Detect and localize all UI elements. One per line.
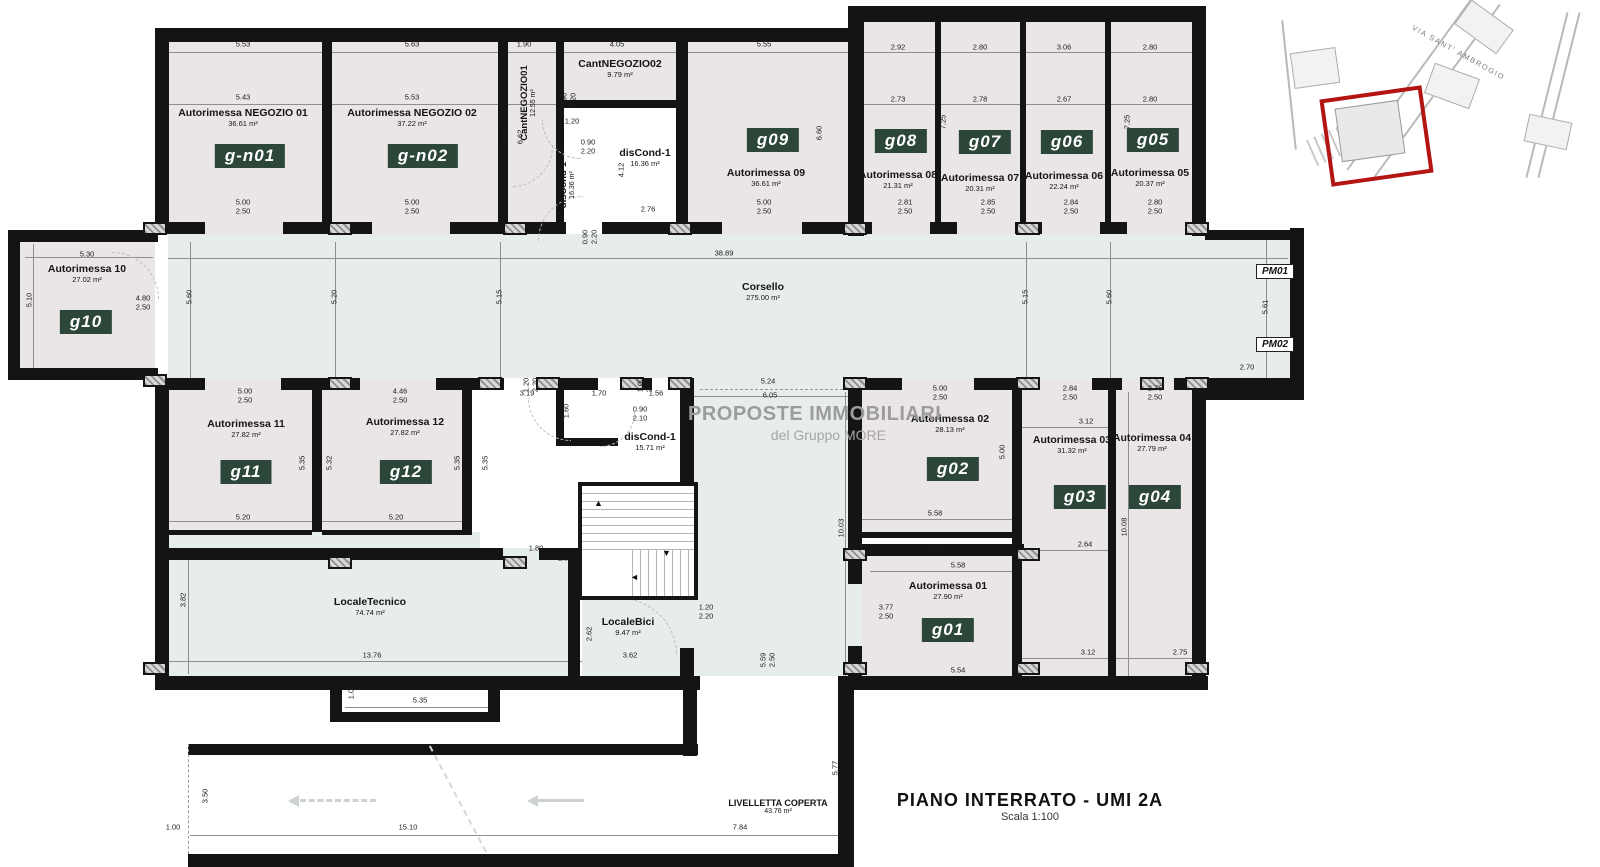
drawing-title: PIANO INTERRATO - UMI 2A [897, 790, 1163, 811]
dimension-label: 1.80 [529, 545, 544, 554]
column-pillar [1185, 377, 1209, 390]
inset-building [1290, 47, 1341, 89]
dim-line [862, 519, 1014, 520]
room-label-g03: Autorimessa 03 31.32 m² [1033, 434, 1111, 455]
dimension-label: 5.20 [389, 514, 404, 523]
room-area: 20.37 m² [1111, 179, 1189, 188]
wall [1105, 20, 1111, 226]
room-name: Autorimessa 08 [859, 169, 937, 181]
door-opening [1127, 222, 1185, 234]
room-area: 20.31 m² [941, 184, 1019, 193]
dimension-label: 3.62 [623, 652, 638, 661]
ramp-arrow-solid [538, 799, 584, 802]
wall [1290, 228, 1304, 400]
dimension-label: 5.35 [454, 456, 463, 471]
dimension-label: 2.62 [586, 627, 595, 642]
room-area: 74.74 m² [334, 608, 406, 617]
room-name: Autorimessa 04 [1113, 432, 1191, 444]
room-label-g11: Autorimessa 11 27.82 m² [207, 418, 285, 439]
dimension-label: 5.10 [78, 234, 93, 243]
wall [155, 28, 169, 234]
dimension-label: 4.80 2.50 [136, 294, 151, 311]
dimension-label: 5.20 [331, 290, 340, 305]
dimension-label: 5.00 [1016, 611, 1025, 626]
dimension-label: 0.90 2.20 [581, 230, 598, 245]
column-pillar [328, 222, 352, 235]
dimension-label: 3.82 [180, 593, 189, 608]
wall [322, 530, 472, 535]
dimension-label: 5.10 [26, 293, 35, 308]
room-name: CantNEGOZIO02 [578, 58, 661, 70]
room-area: 37.22 m² [347, 119, 477, 128]
dimension-label: 1.20 [565, 118, 580, 127]
wall [330, 712, 500, 722]
dimension-label: 1.00 2.20 [636, 378, 653, 393]
dim-line [335, 242, 336, 378]
wall [676, 28, 688, 226]
wall [8, 230, 20, 380]
room-label-g12: Autorimessa 12 27.82 m² [366, 416, 444, 437]
column-pillar [1185, 662, 1209, 675]
room-name: Autorimessa 12 [366, 416, 444, 428]
room-area: 31.32 m² [1033, 446, 1111, 455]
room-label-g10: Autorimessa 10 27.02 m² [48, 263, 126, 284]
stair-arrow-up-icon: ▲ [594, 498, 603, 508]
wall [462, 390, 472, 532]
wall [322, 42, 332, 226]
inset-building [1424, 63, 1480, 109]
dimension-label: 10.08 [1121, 518, 1130, 537]
room-name: Autorimessa 06 [1025, 170, 1103, 182]
garage-tag-g05: g05 [1127, 128, 1179, 152]
dimension-label: 7.84 [733, 824, 748, 833]
column-pillar [328, 556, 352, 569]
stair-arrow-left-icon: ◄ [630, 572, 639, 582]
dimension-label: 5.60 [186, 290, 195, 305]
ramp-arrow-dashed [300, 799, 376, 802]
dimension-label: 5.35 [413, 697, 428, 706]
dimension-label: 6.60 [816, 126, 825, 141]
wall [168, 530, 312, 535]
dimension-label: 5.00 2.50 [236, 198, 251, 215]
wall [1192, 6, 1206, 236]
room-area: 9.47 m² [602, 628, 655, 637]
dimension-label: 2.92 [891, 44, 906, 53]
dimension-label: 5.53 [236, 41, 251, 50]
marker-pm01: PM01 [1256, 264, 1294, 279]
door-opening [680, 600, 694, 648]
dimension-label: 1.20 2.20 [699, 603, 714, 620]
dimension-label: 5.77 [832, 761, 841, 776]
room-name: LocaleBici [602, 616, 655, 628]
dim-line [1026, 242, 1027, 378]
dimension-label: 1.90 [517, 41, 532, 50]
room-name: LocaleTecnico [334, 596, 406, 608]
door-opening [372, 222, 450, 234]
garage-tag-g03: g03 [1054, 485, 1106, 509]
wall [155, 28, 855, 42]
column-pillar [143, 374, 167, 387]
room-name: disCond-1 [624, 431, 675, 443]
room-fill-g03 [1020, 390, 1108, 676]
dimension-label: 1.20 2.20 [522, 378, 539, 393]
room-label-discond-top-v: disCond-1 16.36 m² [558, 162, 576, 208]
column-pillar [503, 222, 527, 235]
dimension-label: 5.30 [80, 251, 95, 260]
garage-tag-g02: g02 [927, 457, 979, 481]
dim-line [168, 661, 582, 662]
watermark-line2: del Gruppo MORE [688, 427, 886, 443]
dimension-label: 2.80 2.50 [1148, 198, 1163, 215]
wall [1012, 390, 1022, 676]
dimension-label: 5.59 2.50 [759, 653, 776, 668]
room-label-corsello: Corsello 275.00 m² [742, 281, 784, 302]
column-pillar [843, 662, 867, 675]
dimension-label: 2.67 [1057, 96, 1072, 105]
ramp-dashed-edge [188, 744, 189, 854]
room-label-g08: Autorimessa 08 21.31 m² [859, 169, 937, 190]
dim-line [345, 707, 490, 708]
dimension-label: 6.60 [502, 126, 511, 141]
dimension-label: 2.84 2.50 [1063, 384, 1078, 401]
room-label-tecnico: LocaleTecnico 74.74 m² [334, 596, 406, 617]
column-pillar [843, 222, 867, 235]
room-name: disCond-1 [619, 147, 670, 159]
wall [1205, 230, 1304, 240]
dimension-label: 2.80 [1143, 44, 1158, 53]
door-opening [957, 222, 1015, 234]
dimension-label: 5.00 2.50 [757, 198, 772, 215]
dimension-label: 5.53 [405, 94, 420, 103]
room-label-g01: Autorimessa 01 27.90 m² [909, 580, 987, 601]
inset-tram-line [1525, 12, 1568, 177]
inset-tram-line [1537, 12, 1580, 177]
stair-arrow-down-icon: ▼ [662, 548, 671, 558]
room-name: CantNEGOZIO01 [519, 65, 530, 141]
wall [155, 676, 700, 690]
dimension-label: 5.00 2.50 [933, 384, 948, 401]
column-pillar [1016, 222, 1040, 235]
stair-treads-upper [582, 486, 694, 550]
ramp-diagonal-joint [429, 746, 487, 853]
door-opening [1042, 222, 1100, 234]
floor-plan: ▲ ▼ ◄ 5.53 5.43 5.63 5.53 1.90 4.05 5.55… [0, 0, 1600, 867]
room-area: 9.79 m² [578, 70, 661, 79]
room-label-g04: Autorimessa 04 27.79 m² [1113, 432, 1191, 453]
wall [188, 854, 854, 867]
room-area: 15.71 m² [624, 443, 675, 452]
dimension-label: 3.12 [1079, 418, 1094, 427]
dim-line [1110, 242, 1111, 378]
wall [564, 100, 676, 108]
room-area: 27.90 m² [909, 592, 987, 601]
door-opening [205, 222, 283, 234]
staircase: ▲ ▼ ◄ [578, 482, 698, 600]
room-label-discond-mid: disCond-1 15.71 m² [624, 431, 675, 452]
dimension-label: 1.00 [348, 685, 357, 700]
room-name: Autorimessa 11 [207, 418, 285, 430]
dimension-label: 1.80 [558, 555, 573, 564]
dimension-label: 5.58 [928, 545, 943, 554]
garage-tag-g04: g04 [1129, 485, 1181, 509]
column-pillar [143, 662, 167, 675]
room-name: Autorimessa 07 [941, 172, 1019, 184]
garage-tag-g01: g01 [922, 618, 974, 642]
garage-tag-g09: g09 [747, 128, 799, 152]
room-area: 43.76 m² [728, 808, 827, 815]
wall [848, 6, 1206, 22]
dimension-label: 6.05 [763, 392, 778, 401]
dimension-label: 5.20 [236, 514, 251, 523]
dimension-label: 5.61 [1262, 300, 1271, 315]
ramp-arrow-head-icon [527, 795, 538, 807]
dim-line [500, 242, 501, 378]
dim-line [1016, 658, 1194, 659]
garage-tag-g06: g06 [1041, 130, 1093, 154]
room-name: Autorimessa 09 [727, 167, 805, 179]
wall [155, 378, 169, 690]
room-label-g07: Autorimessa 07 20.31 m² [941, 172, 1019, 193]
column-pillar [143, 222, 167, 235]
garage-tag-g11: g11 [220, 460, 271, 484]
room-label-cant02: CantNEGOZIO02 9.79 m² [578, 58, 661, 79]
dimension-label: 5.58 [951, 562, 966, 571]
dimension-label: 2.76 [641, 206, 656, 215]
room-name: LIVELLETTA COPERTA [728, 798, 827, 808]
dimension-label: 15.10 [399, 824, 418, 833]
dimension-label: 5.58 [928, 510, 943, 519]
dimension-label: 2.75 [1173, 649, 1188, 658]
room-name: disCond-1 [558, 162, 569, 208]
wall [862, 532, 1012, 538]
room-area: 275.00 m² [742, 293, 784, 302]
wall [8, 368, 158, 380]
garage-tag-gn01: g-n01 [215, 144, 285, 168]
door-opening [722, 222, 802, 234]
dimension-label: 4.05 [610, 41, 625, 50]
column-pillar [668, 222, 692, 235]
column-pillar [478, 377, 502, 390]
column-pillar [503, 556, 527, 569]
room-area: 28.13 m² [911, 425, 989, 434]
dimension-label: 1.00 [166, 824, 181, 833]
wall [1020, 20, 1026, 226]
dimension-label: 4.46 2.50 [393, 387, 408, 404]
garage-tag-g10: g10 [60, 310, 112, 334]
room-name: Autorimessa 01 [909, 580, 987, 592]
column-pillar [328, 377, 352, 390]
room-name: Corsello [742, 281, 784, 293]
dimension-label: 2.80 [973, 44, 988, 53]
dimension-label: 2.70 [1240, 364, 1255, 373]
inset-highlight-rect [1319, 85, 1433, 186]
column-pillar [843, 548, 867, 561]
column-pillar [1185, 222, 1209, 235]
room-name: Autorimessa 03 [1033, 434, 1111, 446]
dim-line [870, 571, 1014, 572]
marker-pm02: PM02 [1256, 337, 1294, 352]
column-pillar [668, 377, 692, 390]
column-pillar [1016, 377, 1040, 390]
dimension-label: 5.55 [757, 41, 772, 50]
room-area: 27.82 m² [366, 428, 444, 437]
dimension-label: 5.24 [761, 378, 776, 387]
garage-tag-g08: g08 [875, 129, 927, 153]
dimension-label: 13.76 [363, 652, 382, 661]
dimension-label: 3.50 [202, 789, 211, 804]
dimension-label: 5.35 [299, 456, 308, 471]
room-label-cant01: CantNEGOZIO01 12.55 m² [519, 65, 537, 141]
dim-line [190, 242, 191, 378]
room-name: Autorimessa NEGOZIO 02 [347, 107, 477, 119]
dimension-label: 5.00 2.50 [238, 387, 253, 404]
dimension-label: 5.32 [326, 456, 335, 471]
wall [188, 744, 698, 755]
dimension-label: 5.43 [236, 94, 251, 103]
dim-line [190, 835, 838, 836]
dimension-label: 2.75 2.50 [1148, 384, 1163, 401]
room-label-g05: Autorimessa 05 20.37 m² [1111, 167, 1189, 188]
wall [312, 390, 322, 532]
room-area: 16.36 m² [619, 159, 670, 168]
room-label-bici: LocaleBici 9.47 m² [602, 616, 655, 637]
column-pillar [1016, 662, 1040, 675]
garage-tag-g07: g07 [959, 130, 1011, 154]
dimension-label: 2.85 2.50 [981, 198, 996, 215]
door-opening [848, 584, 862, 646]
dimension-label: 7.25 [940, 115, 949, 130]
room-area: 16.36 m² [569, 162, 576, 208]
dimension-label: 2.73 [891, 96, 906, 105]
room-label-gn01: Autorimessa NEGOZIO 01 36.61 m² [178, 107, 308, 128]
inset-building [1524, 114, 1573, 151]
room-label-gn02: Autorimessa NEGOZIO 02 37.22 m² [347, 107, 477, 128]
room-label-g06: Autorimessa 06 22.24 m² [1025, 170, 1103, 191]
dimension-label: 5.54 [951, 667, 966, 676]
watermark-line1: PROPOSTE IMMOBILIARI [688, 403, 941, 426]
dimension-label: 3.06 [1057, 44, 1072, 53]
dimension-label: 0.90 2.20 [581, 138, 596, 155]
room-area: 12.55 m² [530, 65, 537, 141]
room-area: 22.24 m² [1025, 182, 1103, 191]
room-name: Autorimessa 10 [48, 263, 126, 275]
dimension-label: 5.63 [405, 41, 420, 50]
dimension-label: 2.64 [1078, 541, 1093, 550]
dim-line [188, 556, 189, 674]
wall [838, 690, 854, 860]
dimension-label: 1.70 [592, 390, 607, 399]
room-label-g09: Autorimessa 09 36.61 m² [727, 167, 805, 188]
dimension-label: 2.81 2.50 [898, 198, 913, 215]
dimension-label: 10.03 [838, 519, 847, 538]
wall [848, 6, 864, 236]
room-label-livelletta: LIVELLETTA COPERTA 43.76 m² [728, 798, 827, 815]
room-area: 27.79 m² [1113, 444, 1191, 453]
dimension-label: 5.15 [1022, 290, 1031, 305]
room-label-discond-top: disCond-1 16.36 m² [619, 147, 670, 168]
dimension-label: 3.77 2.50 [879, 603, 894, 620]
dimension-label: 3.12 [1081, 649, 1096, 658]
ramp-arrow-head-icon [288, 795, 299, 807]
room-name: Autorimessa NEGOZIO 01 [178, 107, 308, 119]
wall [838, 676, 1208, 690]
dim-line [1020, 427, 1110, 428]
dimension-label: 5.00 [999, 445, 1008, 460]
dimension-label: 5.15 [496, 290, 505, 305]
dimension-label: 2.78 [973, 96, 988, 105]
dimension-label: 2.80 [1143, 96, 1158, 105]
dimension-label: 38.89 [715, 250, 734, 259]
room-area: 27.02 m² [48, 275, 126, 284]
room-area: 21.31 m² [859, 181, 937, 190]
room-area: 36.61 m² [727, 179, 805, 188]
garage-tag-g12: g12 [380, 460, 432, 484]
room-name: Autorimessa 05 [1111, 167, 1189, 179]
column-pillar [1016, 548, 1040, 561]
dimension-label: 5.00 2.50 [405, 198, 420, 215]
dimension-label: 0.90 2.20 [560, 93, 577, 108]
drawing-scale: Scala 1:100 [1001, 811, 1059, 823]
dimension-label: 0.90 2.10 [633, 405, 648, 422]
wall [1192, 390, 1206, 688]
dimension-label: 2.84 2.50 [1064, 198, 1079, 215]
column-pillar [843, 377, 867, 390]
site-location-inset: VIA SANT' AMBROGIO [1278, 0, 1600, 178]
dimension-label: 1.60 [563, 404, 572, 419]
room-area: 27.82 m² [207, 430, 285, 439]
garage-tag-gn02: g-n02 [388, 144, 458, 168]
door-opening [872, 222, 930, 234]
dimension-label: 5.35 [482, 456, 491, 471]
dimension-label: 5.60 [1106, 290, 1115, 305]
room-area: 36.61 m² [178, 119, 308, 128]
